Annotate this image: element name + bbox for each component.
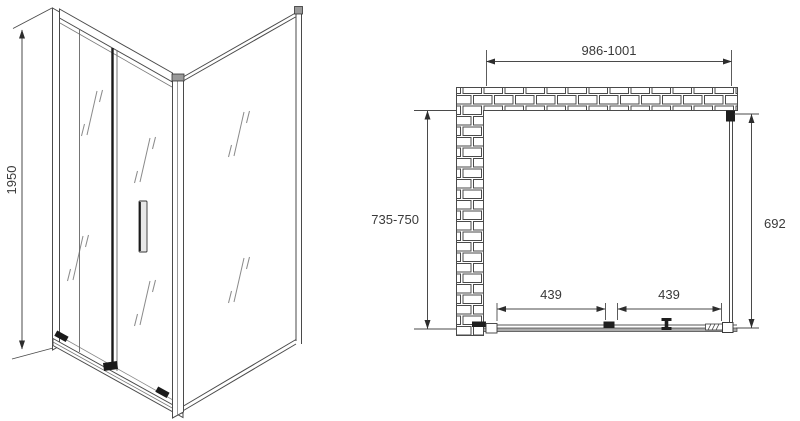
plan-side-glass bbox=[726, 111, 735, 323]
depth-dim-label: 735-750 bbox=[371, 212, 419, 227]
technical-drawing: 1950 bbox=[0, 0, 800, 421]
dimension-depth: 735-750 bbox=[371, 111, 456, 330]
technical-drawing-canvas: 1950 bbox=[0, 0, 800, 421]
side-glass-dim-label: 692 bbox=[764, 216, 786, 231]
width-dim-label: 986-1001 bbox=[582, 43, 637, 58]
bottom-rail bbox=[53, 334, 183, 418]
height-dim-label: 1950 bbox=[4, 166, 19, 195]
corner-post bbox=[172, 74, 184, 418]
sliding-door-edge bbox=[113, 48, 118, 371]
brick-wall bbox=[457, 88, 738, 336]
dimension-height: 1950 bbox=[4, 8, 53, 359]
glass-shine-marks bbox=[68, 90, 250, 326]
plan-view: 986-1001 735-750 692 439 439 bbox=[371, 43, 785, 336]
track-left-profile bbox=[486, 324, 497, 334]
door-roller bbox=[662, 318, 672, 330]
track-center-stop bbox=[604, 322, 615, 329]
track-right-block bbox=[706, 324, 723, 330]
dimension-side-glass: 692 bbox=[734, 114, 786, 328]
dimension-door-sections: 439 439 bbox=[497, 287, 722, 321]
bottom-track bbox=[472, 318, 737, 333]
door-left-dim-label: 439 bbox=[540, 287, 562, 302]
dimension-width: 986-1001 bbox=[487, 43, 732, 86]
door-handle bbox=[139, 201, 147, 252]
side-panel-top-cap bbox=[295, 7, 303, 15]
wall-profile-post bbox=[53, 8, 60, 350]
wall-mount-bracket bbox=[726, 111, 735, 122]
track-left-bracket bbox=[472, 322, 486, 328]
door-right-dim-label: 439 bbox=[658, 287, 680, 302]
top-frame-bar bbox=[60, 9, 173, 87]
door-bottom-guide bbox=[103, 361, 118, 371]
track-corner-profile bbox=[723, 323, 734, 333]
side-glass-panel bbox=[184, 7, 303, 411]
isometric-view: 1950 bbox=[4, 7, 303, 419]
